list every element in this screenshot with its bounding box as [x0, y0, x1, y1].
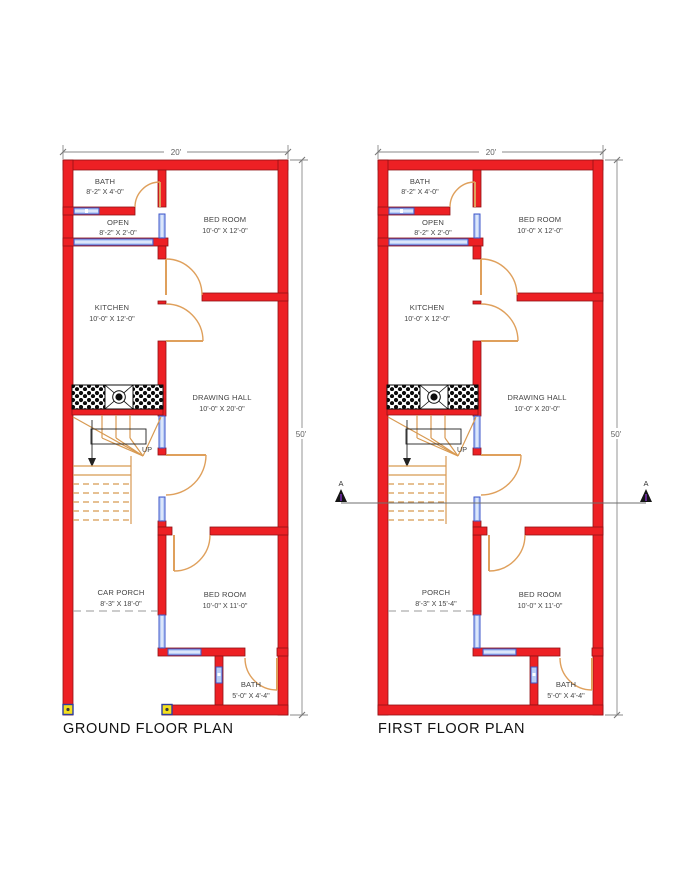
- room-size: 10'-0" X 12'-0": [517, 226, 563, 235]
- stair-up-label: UP: [457, 445, 467, 454]
- room-size: 8'-3" X 15'-4": [415, 599, 457, 608]
- room-size: 10'-0" X 20'-0": [199, 404, 245, 413]
- room-size: 8'-2" X 2'-0": [414, 228, 452, 237]
- first-floor-title: FIRST FLOOR PLAN: [378, 721, 525, 737]
- room-label: KITCHEN: [95, 303, 129, 312]
- room-size: 5'-0" X 4'-4": [232, 691, 270, 700]
- room-label: BED ROOM: [204, 215, 247, 224]
- room-label: OPEN: [107, 218, 129, 227]
- room-label: BATH: [241, 680, 261, 689]
- room-label: DRAWING HALL: [507, 393, 566, 402]
- room-label: OPEN: [422, 218, 444, 227]
- room-size: 8'-2" X 2'-0": [99, 228, 137, 237]
- width-dimension: 20': [171, 148, 182, 157]
- ground-floor-title: GROUND FLOOR PLAN: [63, 721, 234, 737]
- section-label-left: A: [338, 479, 343, 488]
- stair-up-label: UP: [142, 445, 152, 454]
- room-size: 10'-0" X 12'-0": [404, 314, 450, 323]
- room-label: PORCH: [422, 588, 450, 597]
- floor-plan-drawing: BATH 8'-2" X 4'-0" OPEN 8'-2" X 2'-0" BE…: [0, 0, 680, 880]
- room-label: CAR PORCH: [98, 588, 145, 597]
- first-floor-plan: BATH 8'-2" X 4'-0" OPEN 8'-2" X 2'-0" BE…: [378, 160, 603, 715]
- ground-floor-plan: BATH 8'-2" X 4'-0" OPEN 8'-2" X 2'-0" BE…: [63, 160, 288, 715]
- room-size: 5'-0" X 4'-4": [547, 691, 585, 700]
- room-label: KITCHEN: [410, 303, 444, 312]
- room-size: 8'-3" X 18'-0": [100, 599, 142, 608]
- room-size: 8'-2" X 4'-0": [86, 187, 124, 196]
- room-size: 10'-0" X 20'-0": [514, 404, 560, 413]
- ground-bottom-wall: [162, 705, 288, 715]
- first-bottom-wall: [378, 705, 603, 715]
- room-size: 10'-0" X 12'-0": [89, 314, 135, 323]
- room-label: BED ROOM: [519, 590, 562, 599]
- plan-canvas: BATH 8'-2" X 4'-0" OPEN 8'-2" X 2'-0" BE…: [0, 0, 680, 880]
- width-dimension: 20': [486, 148, 497, 157]
- room-size: 10'-0" X 11'-0": [203, 601, 248, 610]
- room-label: BATH: [556, 680, 576, 689]
- room-size: 10'-0" X 11'-0": [518, 601, 563, 610]
- room-size: 10'-0" X 12'-0": [202, 226, 248, 235]
- room-label: BED ROOM: [519, 215, 562, 224]
- room-label: BATH: [95, 177, 115, 186]
- height-dimension: 50': [611, 430, 622, 439]
- room-label: BATH: [410, 177, 430, 186]
- room-label: BED ROOM: [204, 590, 247, 599]
- section-label-right: A: [643, 479, 648, 488]
- height-dimension: 50': [296, 430, 307, 439]
- room-size: 8'-2" X 4'-0": [401, 187, 439, 196]
- room-label: DRAWING HALL: [192, 393, 251, 402]
